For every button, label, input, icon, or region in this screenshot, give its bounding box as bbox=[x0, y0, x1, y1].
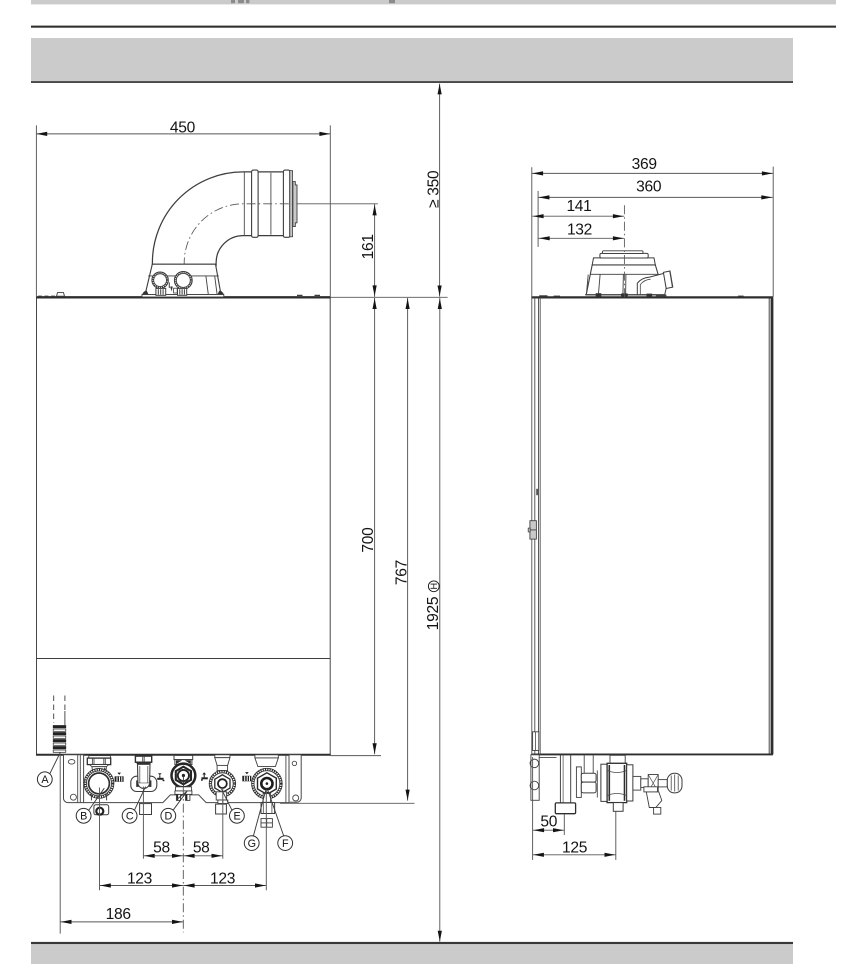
svg-text:50: 50 bbox=[540, 814, 557, 831]
svg-text:58: 58 bbox=[193, 840, 210, 857]
svg-text:369: 369 bbox=[632, 156, 657, 173]
svg-text:E: E bbox=[233, 811, 240, 823]
svg-text:161: 161 bbox=[360, 234, 377, 259]
svg-text:C: C bbox=[126, 811, 134, 823]
svg-text:125: 125 bbox=[562, 839, 588, 856]
svg-text:123: 123 bbox=[210, 870, 235, 887]
svg-text:360: 360 bbox=[636, 178, 662, 195]
svg-text:123: 123 bbox=[127, 870, 152, 887]
svg-text:1925: 1925 bbox=[425, 596, 442, 630]
svg-text:A: A bbox=[41, 774, 49, 786]
svg-text:F: F bbox=[282, 838, 289, 850]
svg-text:H: H bbox=[429, 583, 439, 589]
svg-text:141: 141 bbox=[566, 198, 591, 215]
svg-text:58: 58 bbox=[153, 840, 170, 857]
svg-text:≥ 350: ≥ 350 bbox=[425, 170, 442, 208]
svg-text:186: 186 bbox=[106, 906, 131, 923]
svg-text:700: 700 bbox=[360, 527, 377, 553]
svg-text:767: 767 bbox=[394, 560, 411, 585]
svg-text:G: G bbox=[248, 838, 256, 850]
svg-text:450: 450 bbox=[170, 119, 196, 136]
svg-text:B: B bbox=[80, 811, 87, 823]
svg-text:D: D bbox=[165, 811, 173, 823]
svg-text:132: 132 bbox=[567, 222, 592, 239]
